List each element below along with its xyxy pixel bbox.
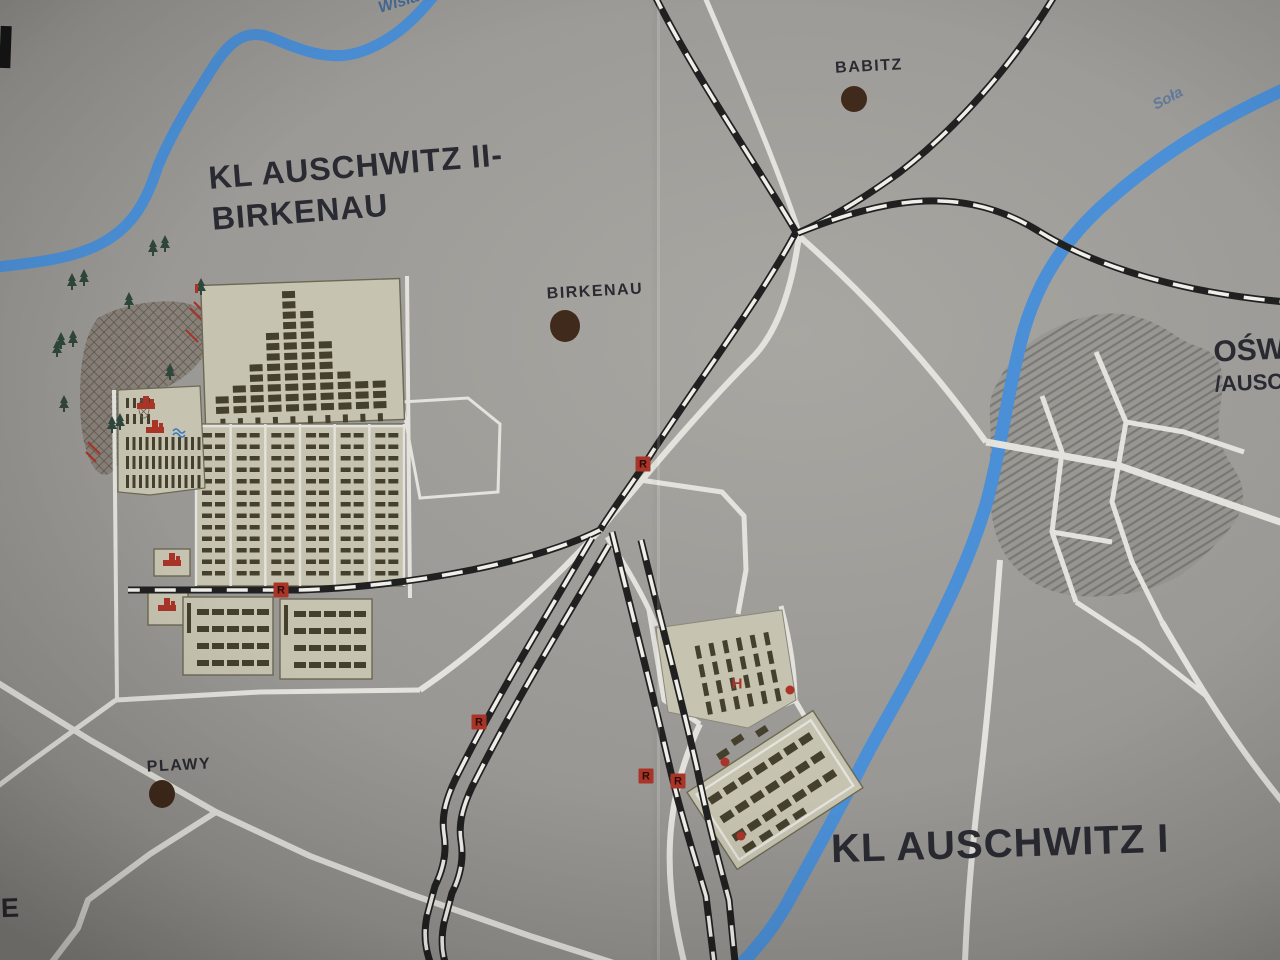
barrack	[301, 321, 314, 328]
barrack	[339, 662, 351, 668]
oswiecim-town-area	[990, 314, 1243, 597]
barrack	[250, 385, 263, 392]
barrack	[354, 433, 364, 438]
rail-marker: R	[639, 769, 654, 784]
barrack	[159, 456, 162, 469]
barrack	[283, 311, 296, 318]
barrack	[271, 491, 281, 496]
barrack	[237, 456, 247, 461]
barrack	[237, 468, 247, 473]
barrack	[306, 548, 316, 553]
barrack	[133, 398, 136, 408]
road	[702, 0, 799, 232]
barrack	[755, 725, 769, 737]
barrack	[306, 560, 316, 565]
road	[799, 236, 986, 442]
map-shape	[160, 239, 170, 248]
barrack	[187, 603, 191, 633]
barrack	[251, 395, 264, 402]
map-rect	[200, 291, 202, 295]
barrack	[354, 468, 364, 473]
map-shape	[68, 334, 78, 343]
tree-icon	[59, 395, 69, 412]
barrack	[152, 437, 155, 450]
barrack	[388, 445, 398, 450]
barrack	[354, 514, 364, 519]
barrack	[319, 560, 329, 565]
barrack	[284, 479, 294, 484]
town-hatch	[990, 314, 1243, 597]
barrack	[172, 437, 175, 450]
barrack	[216, 407, 229, 414]
barrack	[237, 571, 247, 576]
barrack	[198, 475, 201, 488]
barrack	[159, 475, 162, 488]
barrack	[301, 342, 314, 349]
map-rect	[164, 248, 166, 252]
map-rect	[83, 282, 85, 286]
barrack	[237, 514, 247, 519]
barrack	[215, 548, 225, 553]
barrack	[198, 456, 201, 469]
barrack	[268, 384, 281, 391]
barrack	[202, 433, 212, 438]
barrack	[378, 413, 383, 421]
barrack	[215, 445, 225, 450]
rail-marker: R	[636, 457, 651, 472]
map-rect	[119, 426, 121, 430]
barrack	[215, 502, 225, 507]
barrack	[301, 331, 314, 338]
map-rect	[56, 353, 58, 357]
barrack	[375, 456, 385, 461]
barrack	[306, 479, 316, 484]
barrack	[268, 405, 281, 412]
barrack	[731, 734, 745, 746]
barrack	[338, 382, 351, 389]
barrack	[284, 353, 297, 360]
barrack	[319, 479, 329, 484]
barrack	[388, 491, 398, 496]
barrack	[284, 525, 294, 530]
red-dot-marker	[721, 758, 730, 767]
barrack	[338, 402, 351, 409]
barrack	[319, 341, 332, 348]
barrack	[375, 502, 385, 507]
barrack	[319, 537, 329, 542]
panel-edge-mark	[0, 26, 12, 68]
barrack	[306, 571, 316, 576]
red-tick	[195, 284, 198, 293]
barrack	[271, 479, 281, 484]
barrack	[354, 560, 364, 565]
barrack	[373, 391, 386, 398]
barrack	[319, 514, 329, 519]
barrack	[306, 468, 316, 473]
road	[965, 560, 1000, 960]
barrack	[294, 662, 306, 668]
barrack	[302, 373, 315, 380]
barrack	[250, 514, 260, 519]
barrack	[271, 433, 281, 438]
barrack	[302, 352, 315, 359]
barrack	[354, 456, 364, 461]
barrack	[309, 611, 321, 617]
planned-expansion-outline	[402, 398, 500, 498]
barrack	[306, 525, 316, 530]
barrack	[284, 571, 294, 576]
barrack	[139, 475, 142, 488]
oswiecim-label-line1: OŚW	[1213, 334, 1280, 367]
barrack	[267, 364, 280, 371]
barrack	[271, 445, 281, 450]
barrack	[146, 475, 149, 488]
railway-line	[600, 0, 796, 530]
barrack	[126, 398, 129, 408]
barrack	[271, 548, 281, 553]
map-rect	[71, 286, 73, 290]
red-dot-marker	[786, 686, 795, 695]
barrack	[319, 571, 329, 576]
barrack	[309, 662, 321, 668]
barrack	[126, 437, 129, 450]
barrack	[250, 571, 260, 576]
barrack	[133, 437, 136, 450]
rail-marker: R	[472, 715, 487, 730]
barrack	[237, 560, 247, 565]
barrack	[233, 406, 246, 413]
barrack	[242, 609, 254, 615]
barrack	[354, 662, 366, 668]
barrack	[284, 363, 297, 370]
barrack	[257, 609, 269, 615]
barrack	[319, 468, 329, 473]
barrack	[375, 479, 385, 484]
town-label-plawy: PLAWY	[146, 755, 211, 776]
barrack	[133, 475, 136, 488]
barrack	[212, 643, 224, 649]
barrack	[356, 402, 369, 409]
barrack	[271, 456, 281, 461]
barrack	[250, 548, 260, 553]
barrack	[257, 626, 269, 632]
map-rect	[152, 252, 154, 256]
barrack	[178, 437, 181, 450]
barrack	[215, 560, 225, 565]
barrack	[354, 645, 366, 651]
rail-marker: R	[671, 774, 686, 789]
barrack	[320, 372, 333, 379]
map-rect	[158, 605, 176, 611]
oswiecim-label: OŚW /AUSC	[1213, 334, 1280, 395]
barrack	[249, 364, 262, 371]
barrack	[165, 456, 168, 469]
barrack	[284, 560, 294, 565]
map-rect	[176, 556, 180, 560]
tree-icon	[68, 330, 78, 347]
town-dot	[149, 780, 175, 808]
barrack	[215, 479, 225, 484]
barrack	[341, 537, 351, 542]
map-rect	[72, 343, 74, 347]
barrack	[324, 628, 336, 634]
barrack	[202, 560, 212, 565]
barrack	[133, 456, 136, 469]
barrack	[185, 437, 188, 450]
barrack	[178, 456, 181, 469]
barrack	[285, 383, 298, 390]
barrack	[271, 502, 281, 507]
barrack	[341, 548, 351, 553]
barrack	[375, 433, 385, 438]
barrack	[215, 514, 225, 519]
barrack	[266, 333, 279, 340]
barrack	[286, 404, 299, 411]
barrack	[282, 301, 295, 308]
barrack	[373, 380, 386, 387]
edge-cut-letter: E	[0, 893, 19, 925]
barrack	[306, 502, 316, 507]
barrack	[319, 491, 329, 496]
barrack	[341, 560, 351, 565]
barrack	[284, 468, 294, 473]
barrack	[341, 433, 351, 438]
barrack	[250, 560, 260, 565]
barrack	[257, 660, 269, 666]
barrack	[283, 332, 296, 339]
barrack	[159, 437, 162, 450]
barrack	[341, 468, 351, 473]
barrack	[242, 626, 254, 632]
barrack	[284, 548, 294, 553]
barrack	[319, 456, 329, 461]
display-panel-seam	[657, 0, 660, 960]
map-rect	[171, 601, 175, 605]
barrack	[325, 415, 330, 423]
barrack	[250, 456, 260, 461]
barrack	[306, 456, 316, 461]
barrack	[360, 414, 365, 422]
road	[52, 812, 216, 960]
barrack	[388, 514, 398, 519]
barrack	[355, 381, 368, 388]
barrack	[250, 479, 260, 484]
barrack	[268, 394, 281, 401]
barrack	[388, 502, 398, 507]
barrack	[321, 403, 334, 410]
town-dot	[841, 86, 867, 112]
barrack	[139, 456, 142, 469]
barrack	[185, 456, 188, 469]
barrack	[251, 405, 264, 412]
map-shape	[148, 243, 158, 252]
site-marker: H	[732, 676, 743, 693]
barrack	[126, 414, 129, 424]
barrack	[302, 362, 315, 369]
map-rect	[128, 305, 130, 309]
map-canvas	[0, 0, 1280, 960]
barrack	[146, 456, 149, 469]
barrack	[165, 437, 168, 450]
barrack	[354, 628, 366, 634]
barrack	[294, 628, 306, 634]
map-rect	[169, 376, 171, 380]
barrack	[324, 662, 336, 668]
barrack	[341, 491, 351, 496]
barrack	[388, 537, 398, 542]
barrack	[319, 502, 329, 507]
barrack	[303, 403, 316, 410]
barrack	[338, 392, 351, 399]
barrack	[339, 628, 351, 634]
barrack	[152, 475, 155, 488]
barrack	[126, 456, 129, 469]
barrack	[319, 351, 332, 358]
barrack	[185, 475, 188, 488]
barrack	[354, 479, 364, 484]
camp-structures	[118, 278, 863, 869]
barrack	[306, 491, 316, 496]
barrack	[250, 468, 260, 473]
barrack	[303, 393, 316, 400]
barrack	[250, 374, 263, 381]
barrack	[191, 475, 194, 488]
barrack	[215, 537, 225, 542]
barrack	[133, 414, 136, 424]
barrack	[319, 525, 329, 530]
barrack	[306, 433, 316, 438]
barrack	[306, 537, 316, 542]
barrack	[227, 660, 239, 666]
map-shape	[79, 273, 89, 282]
barrack	[375, 571, 385, 576]
barrack	[266, 343, 279, 350]
barrack	[284, 514, 294, 519]
barrack	[237, 525, 247, 530]
barrack	[341, 525, 351, 530]
barrack	[237, 445, 247, 450]
barrack	[375, 491, 385, 496]
barrack	[375, 548, 385, 553]
barrack	[300, 311, 313, 318]
barrack	[271, 571, 281, 576]
museum-map-photo: { "colors": { "background": "#9d9b97", "…	[0, 0, 1280, 960]
outlined-area	[402, 398, 500, 498]
barrack	[284, 605, 288, 635]
map-rect	[146, 427, 164, 433]
road	[116, 690, 420, 700]
barrack	[354, 571, 364, 576]
barrack	[282, 291, 295, 298]
barrack	[308, 416, 313, 424]
barrack	[202, 502, 212, 507]
barrack	[341, 456, 351, 461]
barrack	[250, 445, 260, 450]
map-rect	[163, 560, 181, 566]
barrack	[354, 537, 364, 542]
road	[216, 812, 620, 960]
road	[1162, 622, 1280, 806]
barrack	[198, 437, 201, 450]
barrack	[284, 537, 294, 542]
barrack	[388, 571, 398, 576]
barrack	[237, 479, 247, 484]
barrack	[242, 643, 254, 649]
map-shape	[59, 399, 69, 408]
barrack	[375, 525, 385, 530]
barrack	[250, 491, 260, 496]
barrack	[165, 475, 168, 488]
barrack	[215, 525, 225, 530]
town-dot	[550, 310, 580, 342]
barrack	[126, 475, 129, 488]
map-rect	[169, 553, 175, 560]
barrack	[242, 660, 254, 666]
barrack	[212, 626, 224, 632]
barrack	[146, 437, 149, 450]
barrack	[284, 491, 294, 496]
map-rect	[63, 408, 65, 412]
barrack	[250, 525, 260, 530]
barrack	[215, 456, 225, 461]
barrack	[388, 468, 398, 473]
barrack	[284, 445, 294, 450]
barrack	[237, 537, 247, 542]
barrack	[202, 571, 212, 576]
barrack	[375, 445, 385, 450]
barrack	[215, 571, 225, 576]
barrack	[354, 445, 364, 450]
barrack	[306, 514, 316, 519]
barrack	[227, 609, 239, 615]
barrack	[178, 475, 181, 488]
barrack	[139, 437, 142, 450]
barrack	[324, 611, 336, 617]
barrack	[191, 437, 194, 450]
barrack	[375, 468, 385, 473]
barrack	[250, 537, 260, 542]
barrack	[388, 560, 398, 565]
barrack	[212, 660, 224, 666]
barrack	[341, 479, 351, 484]
barrack	[294, 645, 306, 651]
barrack	[339, 645, 351, 651]
barrack	[191, 456, 194, 469]
map-rect	[137, 403, 155, 409]
tree-icon	[160, 235, 170, 252]
rail-marker: R	[274, 583, 289, 598]
barrack	[320, 382, 333, 389]
barrack	[202, 491, 212, 496]
barrack	[202, 537, 212, 542]
barrack	[339, 611, 351, 617]
town-label-babitz: BABITZ	[835, 56, 904, 78]
barrack	[309, 645, 321, 651]
barrack	[388, 479, 398, 484]
barrack	[271, 468, 281, 473]
barrack	[375, 560, 385, 565]
barrack	[306, 445, 316, 450]
barrack	[237, 502, 247, 507]
barrack	[271, 537, 281, 542]
barrack	[303, 383, 316, 390]
barrack	[341, 514, 351, 519]
barrack	[227, 643, 239, 649]
barrack	[354, 611, 366, 617]
barrack	[284, 456, 294, 461]
barrack	[271, 560, 281, 565]
barrack	[284, 502, 294, 507]
